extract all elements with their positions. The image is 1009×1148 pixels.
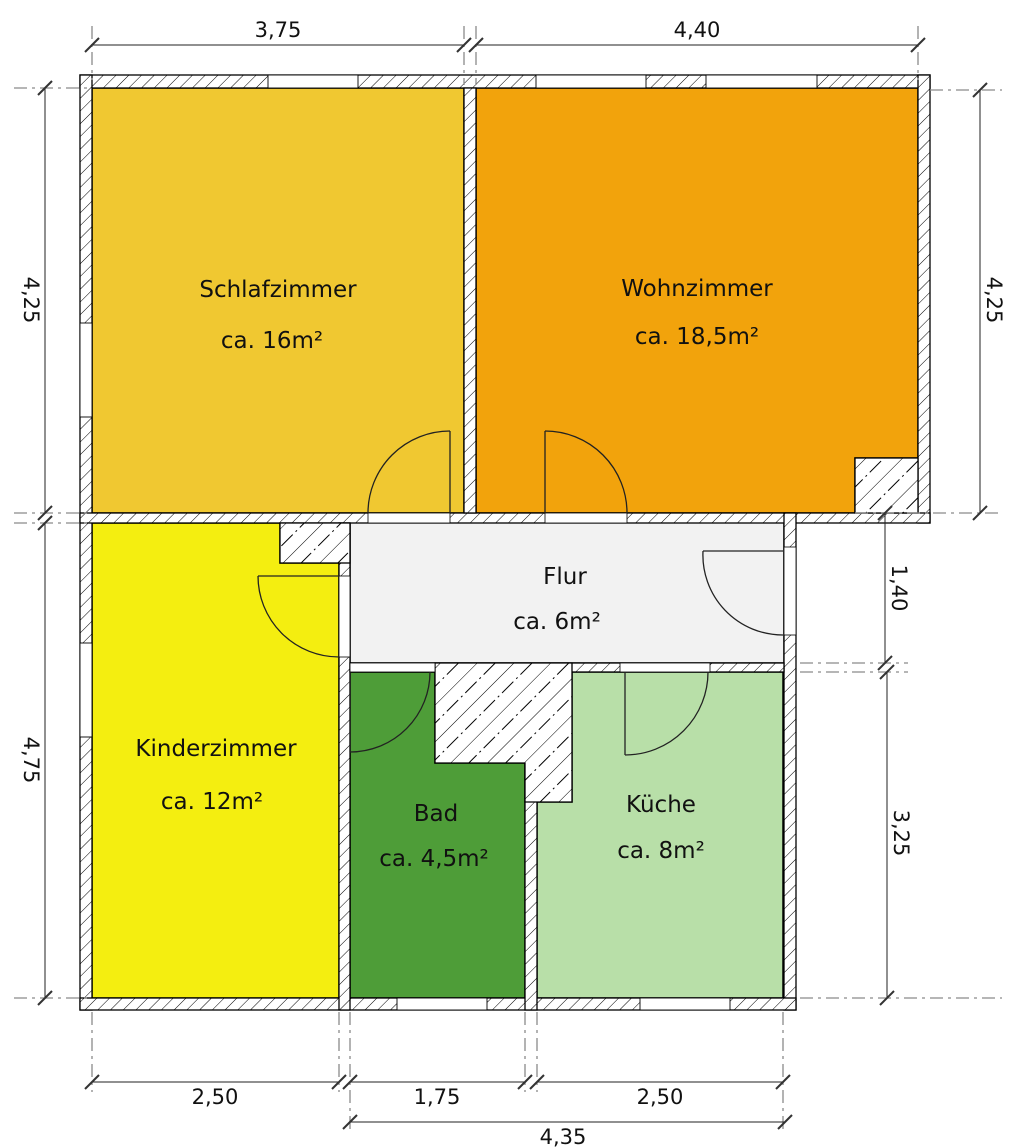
- dim-right-lower: 3,25: [889, 810, 913, 857]
- duct-block-wohnzimmer-corner: [855, 458, 918, 513]
- area-schlafzimmer: ca. 16m²: [221, 328, 323, 354]
- dim-bottom-kueche: 2,50: [637, 1085, 684, 1109]
- door-opening-bad: [350, 663, 435, 672]
- dim-left-lower: 4,75: [19, 737, 43, 784]
- area-bad: ca. 4,5m²: [379, 846, 489, 872]
- label-kinderzimmer: Kinderzimmer: [135, 736, 297, 762]
- window-kinderzimmer-left: [80, 643, 92, 737]
- door-opening-kueche: [620, 663, 710, 672]
- dim-bottom-kinderzimmer: 2,50: [192, 1085, 239, 1109]
- door-opening-schlafzimmer: [368, 513, 450, 523]
- window-wohnzimmer-top-left: [536, 75, 646, 88]
- room-kueche: [537, 672, 783, 998]
- wall-left: [80, 75, 92, 1010]
- label-schlafzimmer: Schlafzimmer: [199, 277, 357, 303]
- duct-block-kinderzimmer-corner: [280, 523, 350, 563]
- area-kueche: ca. 8m²: [617, 838, 705, 864]
- area-wohnzimmer: ca. 18,5m²: [635, 324, 759, 350]
- dim-top-left: 3,75: [255, 18, 302, 42]
- window-wohnzimmer-top-right: [706, 75, 817, 88]
- window-bad-bottom: [397, 998, 487, 1010]
- floor-plan-canvas: Schlafzimmer ca. 16m² Wohnzimmer ca. 18,…: [0, 0, 1009, 1148]
- door-opening-wohnzimmer: [545, 513, 627, 523]
- dim-bottom-bad: 1,75: [414, 1085, 461, 1109]
- label-bad: Bad: [414, 801, 458, 827]
- area-flur: ca. 6m²: [513, 609, 601, 635]
- floor-plan: Schlafzimmer ca. 16m² Wohnzimmer ca. 18,…: [0, 0, 1009, 1148]
- room-flur: [350, 522, 784, 663]
- area-kinderzimmer: ca. 12m²: [161, 789, 263, 815]
- door-opening-entrance: [784, 547, 796, 635]
- dim-bottom-total: 4,35: [540, 1125, 587, 1148]
- window-schlafzimmer-left: [80, 323, 92, 417]
- label-flur: Flur: [543, 564, 587, 590]
- dim-left-upper: 4,25: [19, 277, 43, 324]
- label-wohnzimmer: Wohnzimmer: [621, 276, 773, 302]
- wall-right-upper: [918, 75, 930, 523]
- window-schlafzimmer-top: [268, 75, 358, 88]
- window-kueche-bottom: [640, 998, 730, 1010]
- wall-schlaf-wohn-divider: [464, 88, 476, 513]
- label-kueche: Küche: [626, 792, 696, 818]
- dim-right-upper: 4,25: [982, 277, 1006, 324]
- door-opening-kinderzimmer: [339, 576, 350, 657]
- wall-middle-horizontal: [80, 513, 930, 523]
- dim-right-middle: 1,40: [887, 565, 911, 612]
- dim-top-right: 4,40: [674, 18, 721, 42]
